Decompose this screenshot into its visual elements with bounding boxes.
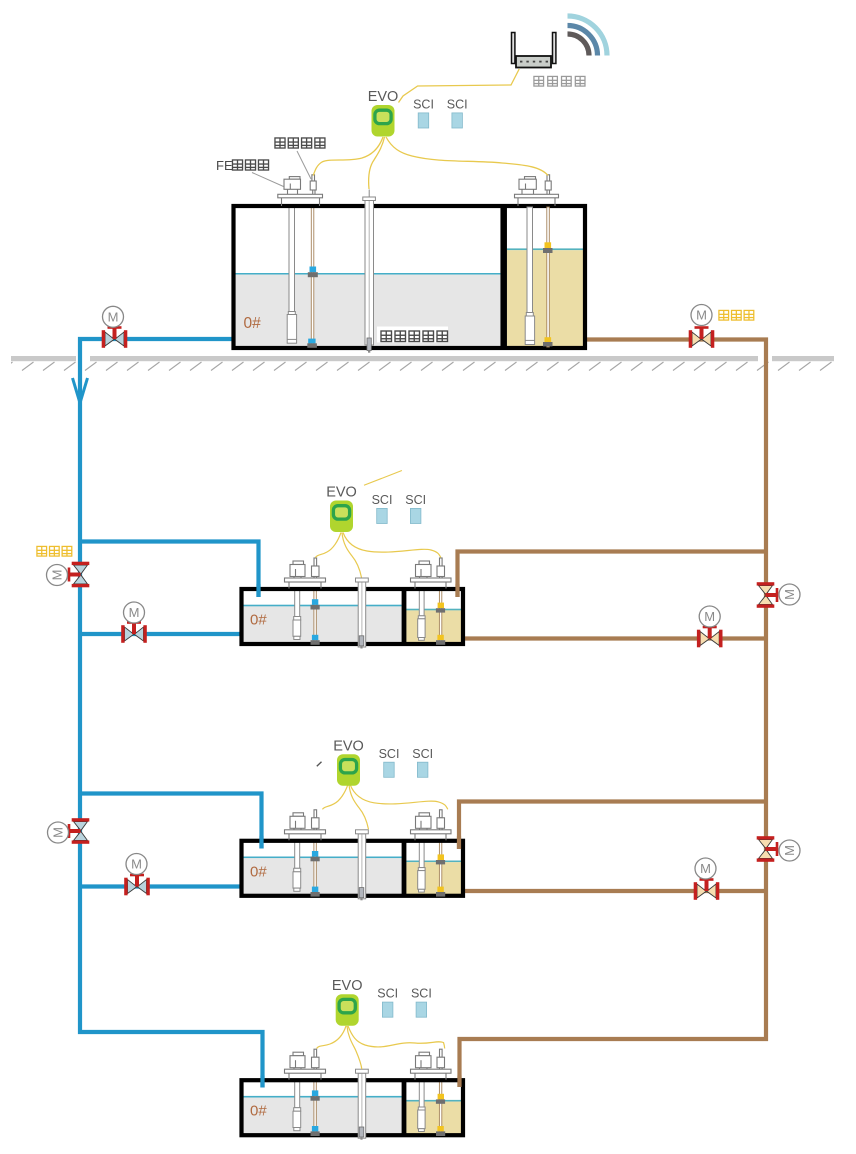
svg-text:0#: 0#	[244, 315, 262, 332]
svg-text:0#: 0#	[250, 612, 267, 629]
svg-text:FE: FE	[216, 158, 233, 173]
